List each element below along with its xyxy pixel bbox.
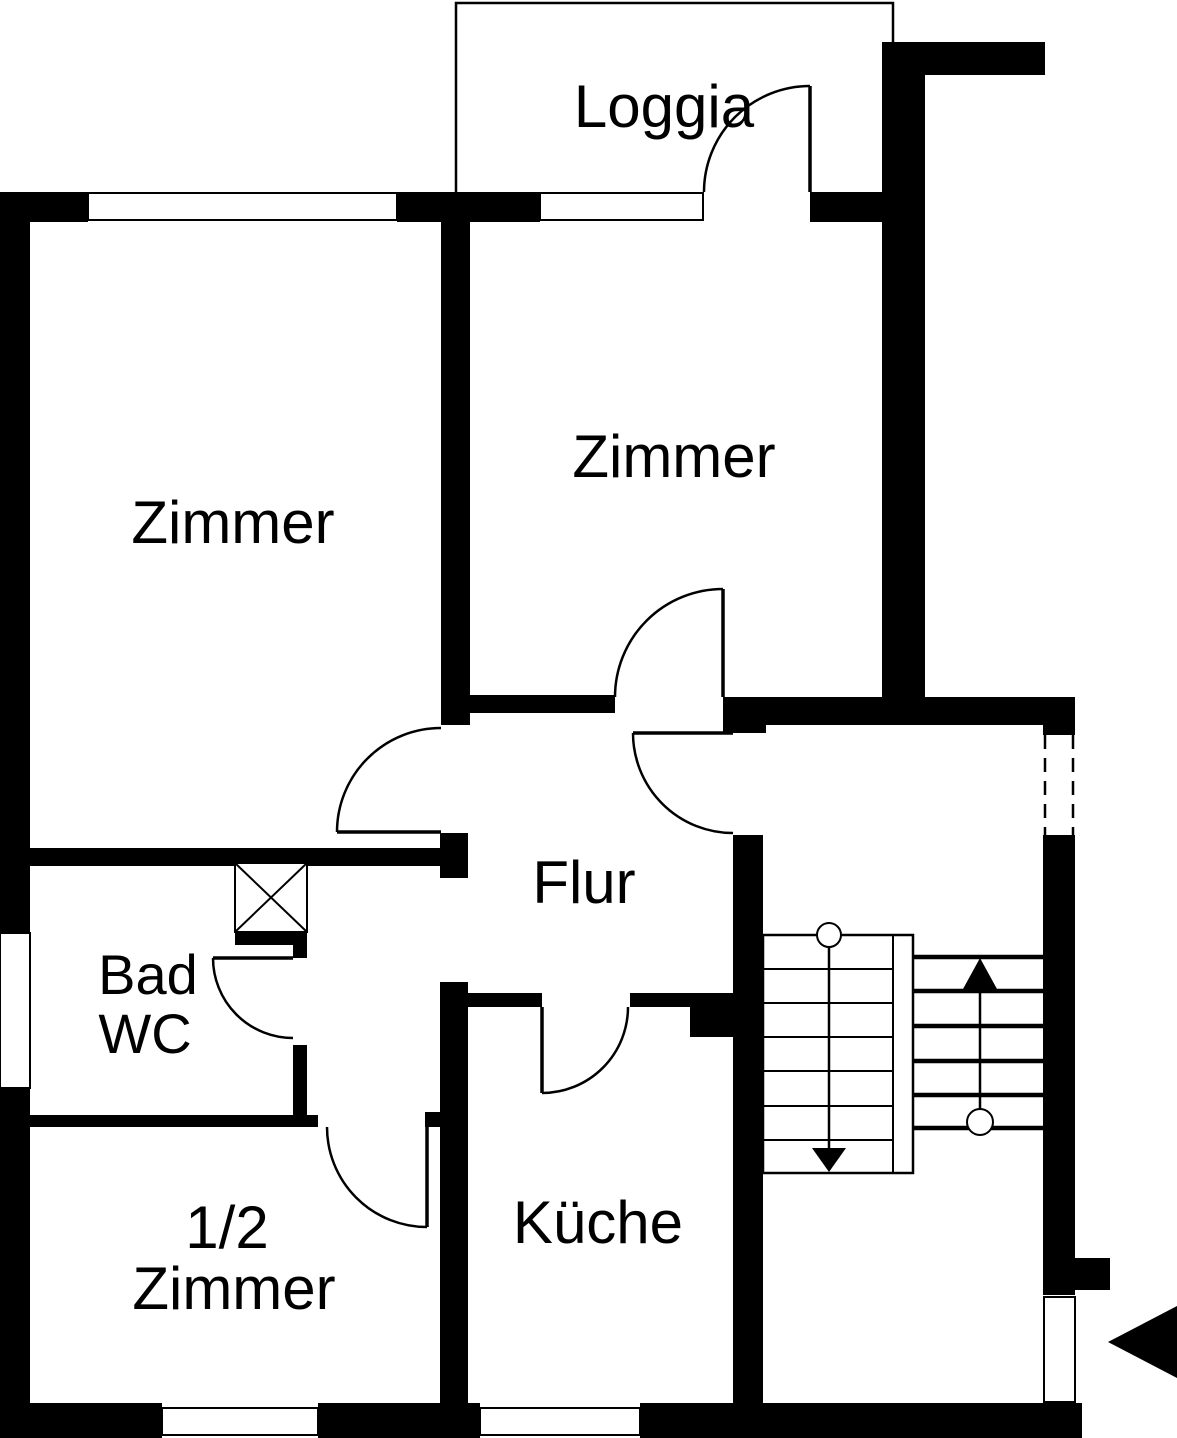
kueche-left-wall — [440, 982, 468, 1403]
entrance-arrow — [1108, 1306, 1177, 1378]
room-label-flur: Flur — [532, 849, 635, 916]
door-swing-half-zimmer — [327, 1127, 427, 1227]
left-wall-lower — [0, 1088, 30, 1438]
stairs-walkline-start — [967, 1109, 993, 1135]
room-labels: Loggia Zimmer Zimmer Flur Bad WC 1/2 Zim… — [98, 73, 775, 1322]
door-swing-zimmer-mid — [615, 589, 723, 697]
room-label-half-zimmer: Zimmer — [132, 1255, 335, 1322]
left-wall-upper — [0, 192, 30, 933]
entrance-opening — [1044, 1297, 1075, 1402]
top-wall-segment — [810, 192, 882, 222]
room-label-wc: WC — [98, 1002, 191, 1065]
room-label-bad: Bad — [98, 943, 198, 1006]
kueche-top-wall-left — [468, 993, 542, 1007]
shaft-bottom-band — [235, 932, 307, 945]
door-swing-zimmer-left — [337, 728, 441, 832]
window-zimmer-left — [88, 193, 397, 220]
kueche-stair-junction-block — [690, 993, 733, 1037]
stair-left-wall — [733, 835, 763, 1403]
wall-junction-block — [440, 833, 468, 878]
stairs-down-arrow — [812, 1148, 846, 1172]
floor-plan-drawing: Loggia Zimmer Zimmer Flur Bad WC 1/2 Zim… — [0, 0, 1177, 1438]
room-label-zimmer-mid: Zimmer — [572, 423, 775, 490]
shaft-cross-box — [235, 863, 307, 932]
bottom-wall-segment — [0, 1403, 162, 1438]
entrance-stub — [1075, 1258, 1110, 1290]
stairwell-party-wall — [882, 75, 925, 697]
window-zimmer-mid — [540, 193, 703, 220]
flur-top-wall-left — [441, 695, 615, 713]
room-label-loggia: Loggia — [574, 73, 755, 140]
window-kueche — [480, 1408, 640, 1435]
stairs-walkline-start — [817, 923, 841, 947]
kueche-top-wall-right — [630, 993, 690, 1007]
bad-door-stub — [293, 945, 307, 958]
top-right-wall — [882, 42, 1045, 75]
stairs-up-arrow — [963, 958, 997, 989]
stair-flight-left-outline — [763, 935, 913, 1173]
bad-bottom-wall — [30, 1115, 318, 1127]
window-half-zimmer — [162, 1408, 318, 1435]
room-label-half: 1/2 — [185, 1194, 268, 1261]
staircase — [763, 923, 1043, 1173]
zimmer-divider-wall — [441, 222, 470, 725]
bottom-wall-segment — [640, 1403, 1082, 1438]
bad-right-wall — [293, 1045, 307, 1115]
door-swing-kueche — [542, 1007, 628, 1093]
room-label-zimmer-left: Zimmer — [131, 489, 334, 556]
half-zimmer-door-stub — [425, 1112, 440, 1127]
window-bad — [0, 933, 30, 1088]
flur-top-wall-right — [723, 697, 1075, 725]
door-swing-entry — [633, 733, 733, 833]
room-label-kueche: Küche — [513, 1189, 683, 1256]
door-swing-bad — [213, 958, 293, 1038]
stair-right-wall — [1043, 835, 1075, 1295]
stair-right-wall-top — [1043, 725, 1075, 735]
floor-plan: Loggia Zimmer Zimmer Flur Bad WC 1/2 Zim… — [0, 0, 1177, 1438]
top-wall-segment — [0, 192, 88, 222]
top-wall-segment — [397, 192, 540, 222]
entry-door-stub — [723, 697, 766, 733]
bottom-wall-segment — [318, 1403, 480, 1438]
